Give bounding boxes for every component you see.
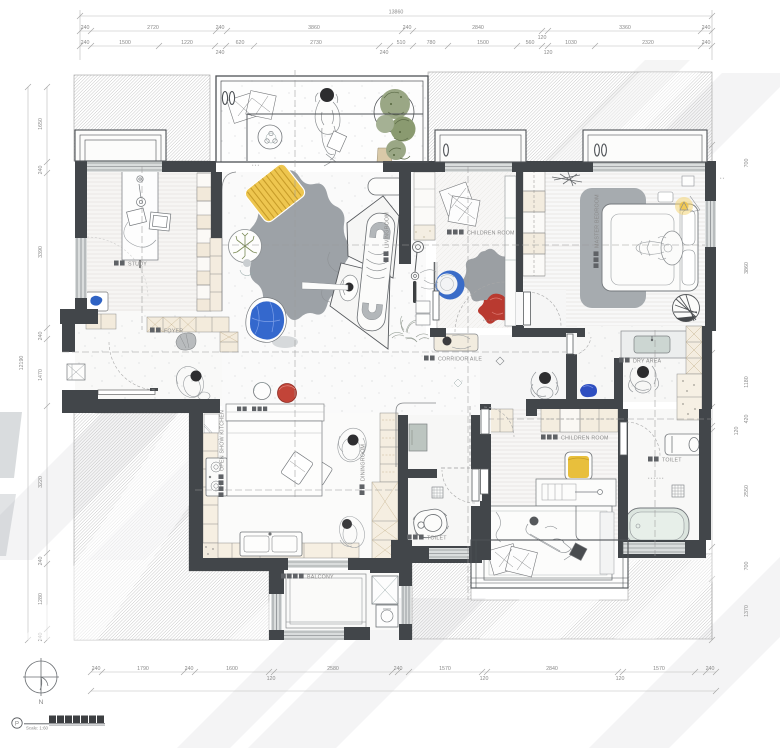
svg-text:240: 240 xyxy=(216,50,225,56)
svg-text:MASTER BEDROOM: MASTER BEDROOM xyxy=(595,194,601,248)
svg-text:1500: 1500 xyxy=(119,40,131,46)
svg-text:3360: 3360 xyxy=(619,25,631,31)
svg-text:CORRIDOR AILE: CORRIDOR AILE xyxy=(438,357,482,363)
svg-text:3860: 3860 xyxy=(744,262,750,274)
svg-text:2840: 2840 xyxy=(472,25,484,31)
svg-text:13860: 13860 xyxy=(389,10,404,16)
svg-text:240: 240 xyxy=(185,666,194,672)
svg-text:120: 120 xyxy=(480,676,489,682)
svg-text:FOYER: FOYER xyxy=(164,329,183,335)
svg-text:120: 120 xyxy=(267,676,276,682)
svg-text:240: 240 xyxy=(81,25,90,31)
svg-text:240: 240 xyxy=(403,25,412,31)
svg-text:* * *: * * * xyxy=(252,164,260,168)
svg-text:700: 700 xyxy=(744,562,750,571)
svg-text:1570: 1570 xyxy=(653,666,665,672)
svg-text:1650: 1650 xyxy=(38,118,44,130)
svg-text:BALCONY: BALCONY xyxy=(307,575,334,581)
svg-text:2840: 2840 xyxy=(546,666,558,672)
svg-text:CHILDREN ROOM: CHILDREN ROOM xyxy=(467,231,515,237)
svg-text:560: 560 xyxy=(526,40,535,46)
svg-text:12190: 12190 xyxy=(19,356,25,371)
svg-text:120: 120 xyxy=(538,35,547,41)
svg-text:* * * * *: * * * * * xyxy=(483,319,496,323)
svg-text:240: 240 xyxy=(81,40,90,46)
svg-text:TOILET: TOILET xyxy=(427,536,447,542)
svg-text:240: 240 xyxy=(216,25,225,31)
svg-text:240: 240 xyxy=(702,25,711,31)
svg-text:1570: 1570 xyxy=(439,666,451,672)
svg-text:240: 240 xyxy=(38,557,44,566)
svg-text:780: 780 xyxy=(427,40,436,46)
svg-text:240: 240 xyxy=(702,40,711,46)
svg-text:OPEN SHOW KITCHEN: OPEN SHOW KITCHEN xyxy=(220,410,226,471)
svg-text:620: 620 xyxy=(236,40,245,46)
svg-text:1280: 1280 xyxy=(38,593,44,605)
svg-text:120: 120 xyxy=(544,50,553,56)
svg-text:3860: 3860 xyxy=(308,25,320,31)
svg-text:2730: 2730 xyxy=(310,40,322,46)
svg-text:N: N xyxy=(39,699,44,706)
svg-text:120: 120 xyxy=(616,676,625,682)
svg-text:1030: 1030 xyxy=(565,40,577,46)
svg-text:510: 510 xyxy=(397,40,406,46)
svg-text:2320: 2320 xyxy=(642,40,654,46)
svg-text:240: 240 xyxy=(38,166,44,175)
svg-text:TOILET: TOILET xyxy=(662,458,682,464)
svg-text:240: 240 xyxy=(394,666,403,672)
svg-text:420: 420 xyxy=(744,415,750,424)
svg-text:DRY AREA: DRY AREA xyxy=(633,359,661,365)
svg-text:1180: 1180 xyxy=(744,376,750,387)
svg-text:700: 700 xyxy=(744,159,750,168)
svg-text:CHILDREN ROOM: CHILDREN ROOM xyxy=(561,436,609,442)
svg-text:STUDY: STUDY xyxy=(128,262,147,268)
svg-text:DININGROOM: DININGROOM xyxy=(361,444,367,481)
svg-text:P: P xyxy=(15,721,19,728)
svg-text:1220: 1220 xyxy=(181,40,193,46)
svg-text:2550: 2550 xyxy=(744,485,750,497)
svg-text:3390: 3390 xyxy=(38,246,44,258)
svg-text:2580: 2580 xyxy=(327,666,339,672)
svg-text:* * * * * *: * * * * * * xyxy=(648,477,664,481)
svg-text:2720: 2720 xyxy=(147,25,159,31)
svg-text:1370: 1370 xyxy=(744,605,750,617)
svg-text:1500: 1500 xyxy=(477,40,489,46)
svg-text:3220: 3220 xyxy=(38,476,44,488)
svg-text:240: 240 xyxy=(92,666,101,672)
svg-text:240: 240 xyxy=(38,332,44,341)
svg-text:240: 240 xyxy=(380,50,389,56)
svg-text:1790: 1790 xyxy=(137,666,149,672)
svg-text:120: 120 xyxy=(734,427,740,436)
svg-text:240: 240 xyxy=(706,666,715,672)
svg-text:LIVINGROOM: LIVINGROOM xyxy=(385,212,391,248)
svg-text:1600: 1600 xyxy=(226,666,238,672)
svg-text:1470: 1470 xyxy=(38,369,44,381)
svg-text:* *: * * xyxy=(720,177,725,181)
svg-text:Scale: 1:60: Scale: 1:60 xyxy=(26,726,49,731)
